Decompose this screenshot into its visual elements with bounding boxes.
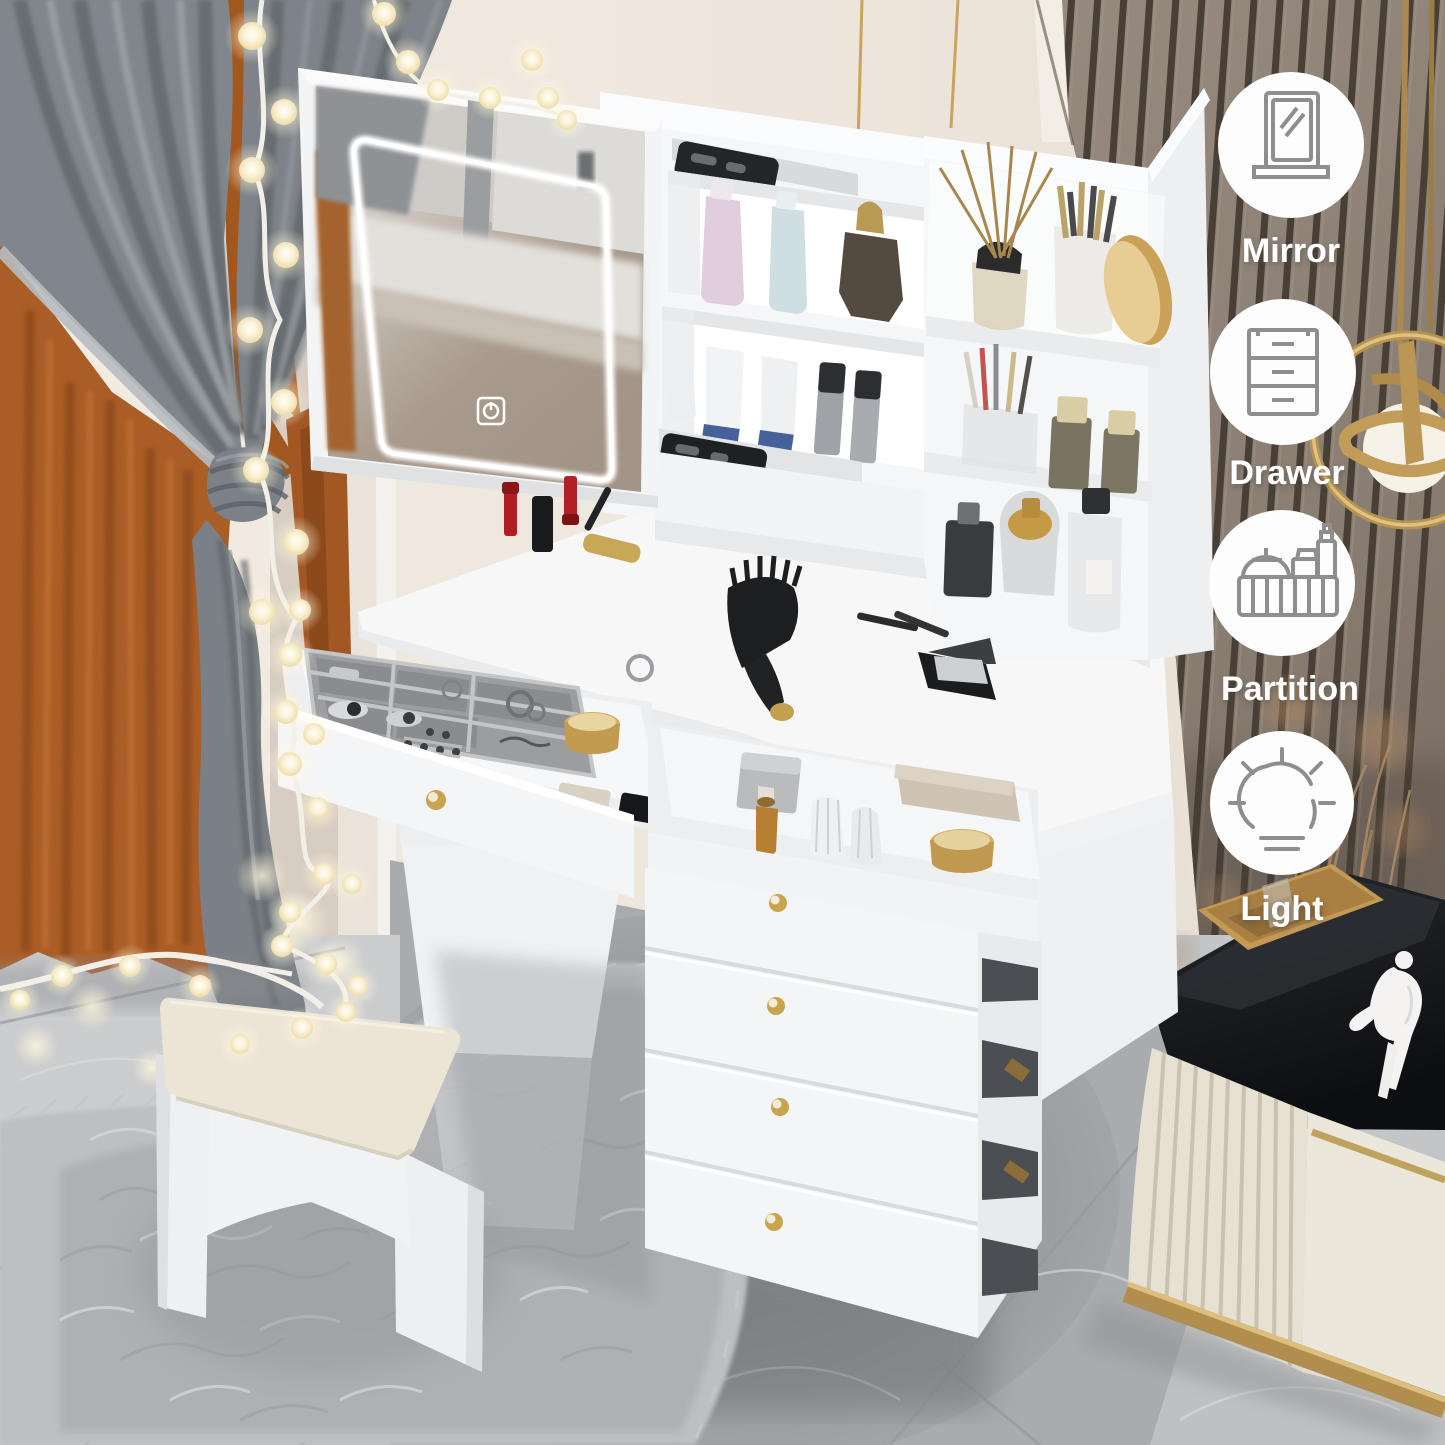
svg-text:Drawer: Drawer bbox=[1229, 454, 1344, 492]
svg-text:Light: Light bbox=[1240, 890, 1323, 928]
svg-text:Partition: Partition bbox=[1221, 670, 1359, 708]
svg-text:Mirror: Mirror bbox=[1242, 232, 1340, 270]
